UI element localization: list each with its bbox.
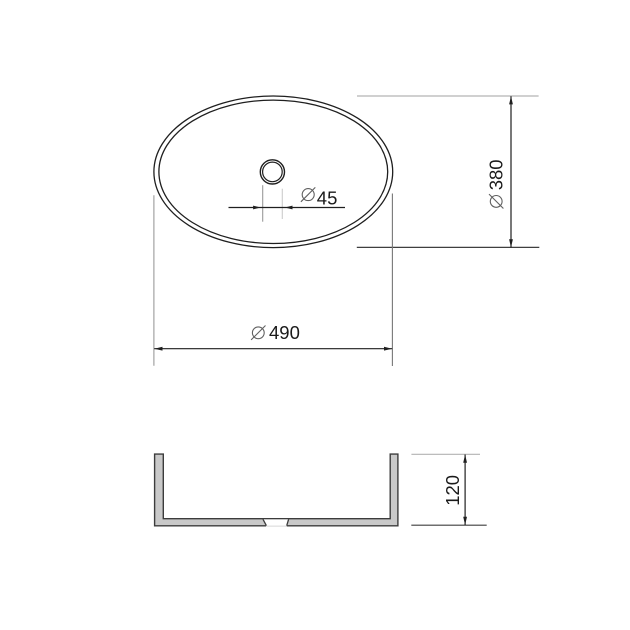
svg-text:120: 120 <box>442 475 463 506</box>
svg-text:45: 45 <box>317 187 338 208</box>
svg-text:380: 380 <box>486 159 507 190</box>
svg-text:490: 490 <box>269 322 300 343</box>
